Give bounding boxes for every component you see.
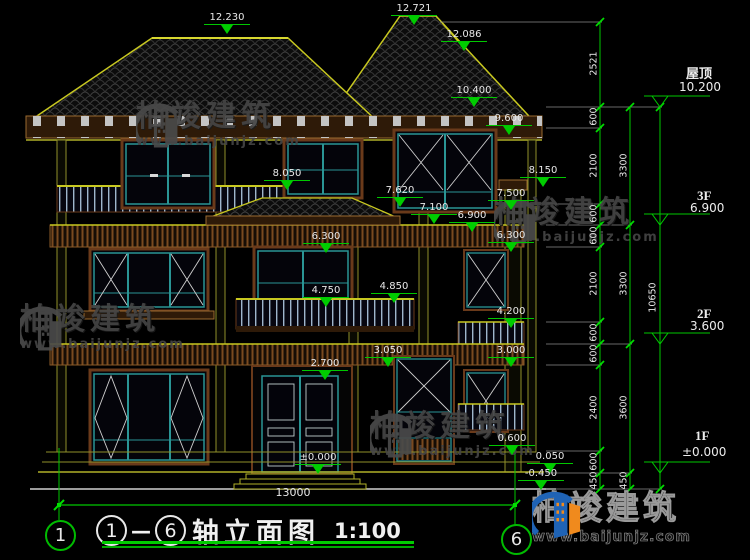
- watermark: 柏竣建筑 www.baijunjz.com: [20, 303, 185, 352]
- balcony-rail-2f-right: [458, 322, 524, 346]
- title-text: 轴立面图: [192, 511, 320, 550]
- window-2f-right: [464, 250, 508, 310]
- floor-band-3f: [50, 225, 524, 247]
- watermark: 柏竣建筑 www.baijunjz.com: [370, 410, 535, 459]
- balcony-rail-2f: [236, 299, 414, 332]
- floor-level-symbols: [644, 96, 710, 473]
- watermark: 柏竣建筑 www.baijunjz.com: [494, 196, 659, 245]
- window-3f-right: [394, 130, 496, 212]
- axis-bubble-1: 1: [45, 520, 76, 551]
- title-dash: —: [131, 519, 151, 543]
- dimension-chain-lines: [600, 22, 660, 489]
- window-1f-left: [90, 370, 208, 464]
- entrance-door: [252, 366, 352, 474]
- cad-elevation-sheet: 柏竣建筑 www.baijunjz.com 柏竣建筑 www.baijunjz.…: [0, 0, 750, 560]
- brand-logo: 柏竣建筑 www.baijunjz.com: [532, 490, 750, 545]
- axis-bubble-6: 6: [501, 524, 532, 555]
- title-underline: [102, 541, 414, 544]
- title-scale: 1:100: [334, 519, 401, 543]
- drawing-title: 1 — 6 轴立面图 1:100: [96, 511, 401, 550]
- brand-building-icon: [494, 196, 546, 252]
- brand-building-icon: [20, 303, 72, 359]
- overall-dimension: 13000: [248, 486, 338, 499]
- brand-building-icon: [136, 100, 188, 156]
- brand-logo-icon: [532, 490, 586, 546]
- elevation-drawing: [0, 0, 750, 560]
- brand-building-icon: [370, 410, 422, 466]
- title-underline: [102, 546, 414, 548]
- watermark: 柏竣建筑 www.baijunjz.com: [136, 100, 301, 149]
